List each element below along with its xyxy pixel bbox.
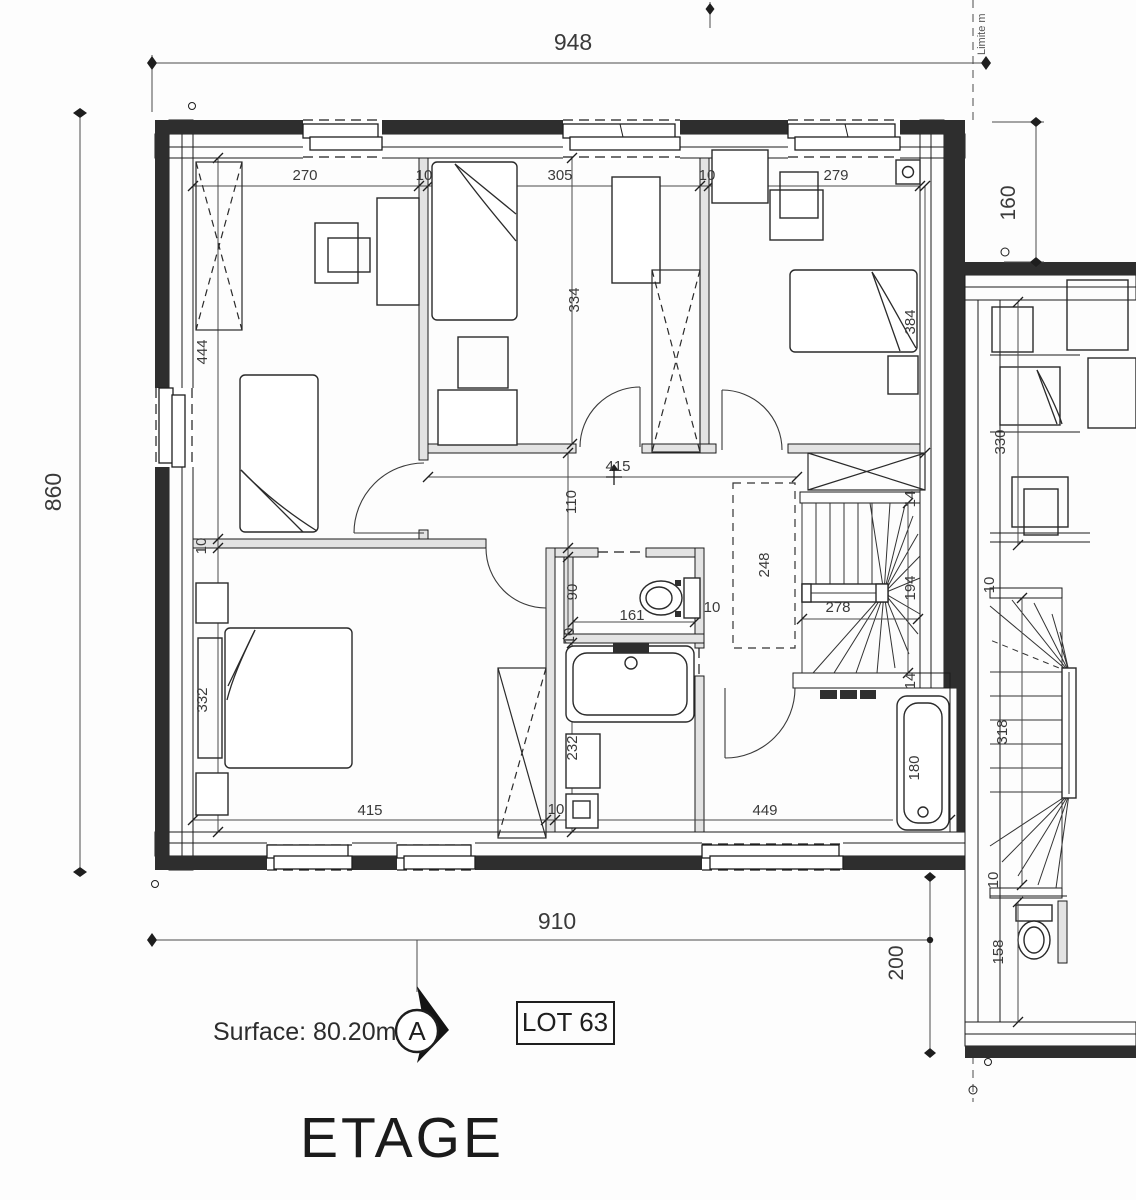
wc-fixtures xyxy=(640,578,700,618)
dim-bedroom2-depth: 334 xyxy=(566,287,583,312)
dim-stair-width: 194 xyxy=(902,575,919,600)
dim-bedroom3-width: 279 xyxy=(823,167,848,184)
dim-bedroom1-width: 270 xyxy=(292,167,317,184)
dim-stair-run: 278 xyxy=(825,599,850,616)
dim-wc-wall: 10 xyxy=(704,599,721,616)
lot-label: LOT 63 xyxy=(522,1007,608,1037)
section-marker-letter: A xyxy=(408,1016,426,1046)
dim-hall-width: 415 xyxy=(605,458,630,475)
dim-overall-bottom: 910 xyxy=(538,908,576,934)
desk-bedroom1 xyxy=(315,223,358,283)
floorplan-drawing: 948 860 160 910 200 270 10 305 10 279 44… xyxy=(0,0,1136,1200)
window-top-2 xyxy=(563,118,680,160)
room5-fixtures xyxy=(897,696,949,830)
dim-bottom-right-setback: 200 xyxy=(885,945,908,980)
desk-bedroom3 xyxy=(770,190,823,240)
dim-neighbor-stair-run: 318 xyxy=(994,719,1011,744)
bed-bedroom3 xyxy=(790,270,917,352)
radiator xyxy=(820,690,876,699)
dim-neighbor-bed-depth: 330 xyxy=(992,429,1009,454)
window-top-3 xyxy=(788,118,900,160)
duct-box xyxy=(896,160,920,184)
dim-bedroom3-depth: 384 xyxy=(902,309,919,334)
window-bottom-1 xyxy=(267,842,352,872)
dim-stair-wall-bottom: 14 xyxy=(902,673,919,690)
dim-right-setback: 160 xyxy=(997,185,1020,220)
dim-bathtub-length: 180 xyxy=(906,755,923,780)
dim-room5-width: 449 xyxy=(752,802,777,819)
dim-neighbor-wall2: 10 xyxy=(985,872,1002,889)
dim-void-depth: 248 xyxy=(756,552,773,577)
dim-bedroom4-depth: 332 xyxy=(194,687,211,712)
dim-wc-width: 161 xyxy=(619,607,644,624)
toilet-tank xyxy=(684,578,700,618)
dim-partition2: 10 xyxy=(699,167,716,184)
boundary-label: Limite m xyxy=(976,13,988,55)
dim-partition1: 10 xyxy=(416,167,433,184)
dim-neighbor-wc-depth: 158 xyxy=(990,939,1007,964)
surface-label: Surface: 80.20m² xyxy=(213,1018,405,1046)
nightstand-bedroom4-b xyxy=(196,773,228,815)
dim-overall-top: 948 xyxy=(554,29,592,55)
nightstand-bedroom4-a xyxy=(196,583,228,623)
dim-wc-wall2: 10 xyxy=(561,628,578,645)
dim-bedroom1-depth: 444 xyxy=(194,339,211,364)
window-top-1 xyxy=(303,118,382,160)
window-bottom-2 xyxy=(397,842,475,872)
dim-neighbor-wall1: 10 xyxy=(981,577,998,594)
bathtub-2 xyxy=(897,696,949,830)
dim-stair-wall-top: 14 xyxy=(902,491,919,508)
desk-bedroom2 xyxy=(438,390,517,445)
dim-partition3: 10 xyxy=(193,538,210,555)
dim-bath-depth: 232 xyxy=(564,735,581,760)
dim-bedroom4-width: 415 xyxy=(357,802,382,819)
dresser-bedroom2 xyxy=(612,177,660,283)
dim-hall-depth: 110 xyxy=(563,490,580,514)
page-title: ETAGE xyxy=(300,1106,504,1170)
bathtub-tap xyxy=(613,643,649,653)
bed-bedroom4 xyxy=(225,628,352,768)
nightstand-bedroom3 xyxy=(888,356,918,394)
bed-bedroom2 xyxy=(432,162,517,320)
dim-overall-left: 860 xyxy=(40,473,66,511)
dim-wc-depth: 90 xyxy=(564,584,581,601)
dim-bedroom2-width: 305 xyxy=(547,167,572,184)
window-bottom-3 xyxy=(702,840,843,872)
neighbor-toilet xyxy=(1016,905,1052,959)
dresser-bedroom3 xyxy=(712,150,768,203)
dim-bath-partition: 10 xyxy=(548,801,565,818)
washbasin xyxy=(566,794,598,828)
window-left xyxy=(153,388,195,467)
dresser-bedroom1 xyxy=(377,198,419,305)
